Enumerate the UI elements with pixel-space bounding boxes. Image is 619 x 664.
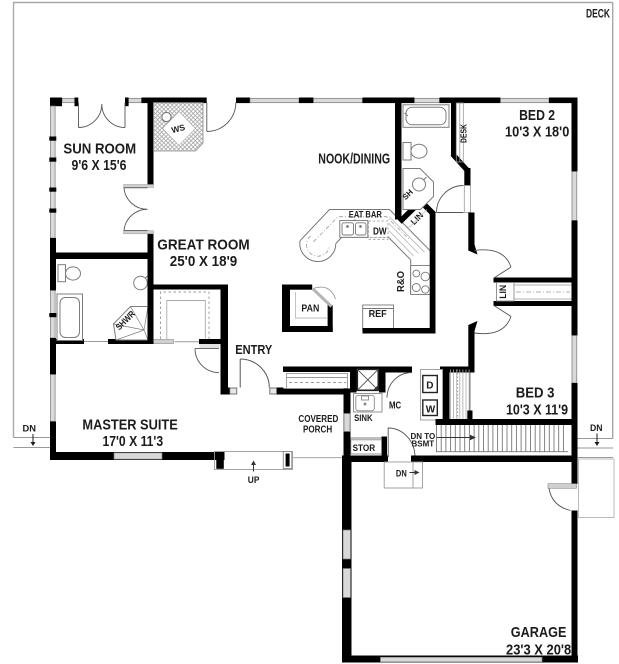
svg-text:DN: DN	[396, 468, 407, 478]
svg-text:REF: REF	[369, 309, 387, 320]
svg-text:STOR: STOR	[353, 443, 376, 454]
svg-text:ENTRY: ENTRY	[235, 342, 272, 357]
svg-text:23'3 X 20'8: 23'3 X 20'8	[506, 642, 571, 659]
svg-text:25'0 X 18'9: 25'0 X 18'9	[170, 253, 237, 270]
svg-text:DESK: DESK	[460, 124, 469, 143]
svg-text:10'3 X 18'0: 10'3 X 18'0	[505, 124, 569, 141]
svg-text:10'3 X 11'9: 10'3 X 11'9	[506, 401, 568, 418]
svg-text:R&O: R&O	[396, 271, 407, 292]
svg-text:BED 2: BED 2	[519, 107, 555, 124]
svg-text:D: D	[426, 380, 433, 391]
svg-text:SUN ROOM: SUN ROOM	[63, 141, 136, 158]
svg-text:MC: MC	[389, 401, 401, 412]
svg-text:MASTER SUITE: MASTER SUITE	[82, 416, 177, 433]
svg-text:SINK: SINK	[354, 413, 373, 424]
svg-text:DECK: DECK	[586, 8, 611, 20]
svg-text:PAN: PAN	[301, 303, 319, 314]
svg-text:PORCH: PORCH	[303, 425, 332, 436]
svg-text:LIN: LIN	[498, 285, 508, 299]
svg-text:9'6 X 15'6: 9'6 X 15'6	[72, 157, 127, 174]
svg-text:UP: UP	[248, 475, 260, 486]
svg-text:W: W	[426, 405, 436, 416]
svg-text:GARAGE: GARAGE	[511, 624, 567, 641]
svg-text:EAT BAR: EAT BAR	[349, 209, 382, 220]
svg-text:NOOK/DINING: NOOK/DINING	[318, 151, 390, 168]
svg-text:17'0 X 11'3: 17'0 X 11'3	[103, 433, 164, 450]
svg-text:BSMT: BSMT	[412, 440, 435, 449]
svg-text:DN: DN	[23, 423, 37, 433]
svg-text:DN: DN	[590, 423, 603, 433]
svg-text:COVERED: COVERED	[298, 414, 338, 425]
svg-text:GREAT ROOM: GREAT ROOM	[157, 237, 249, 254]
svg-text:BED 3: BED 3	[516, 385, 555, 402]
svg-text:DW: DW	[373, 227, 387, 238]
